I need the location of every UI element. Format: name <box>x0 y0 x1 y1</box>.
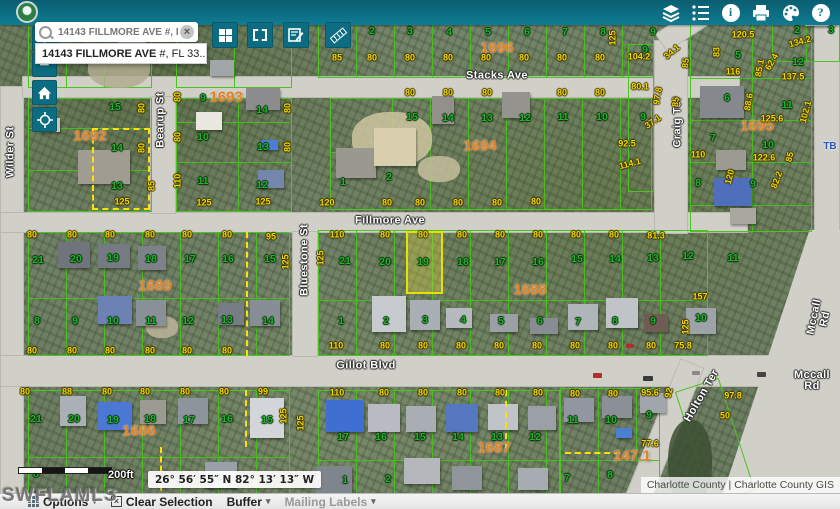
lot-number: 7 <box>575 317 581 328</box>
parcel-line <box>508 230 509 356</box>
lot-number: 5 <box>498 316 504 327</box>
lot-number: 10 <box>762 140 774 151</box>
lot-number: 8 <box>34 316 40 327</box>
parcel-line <box>584 20 585 78</box>
dimension-label: 80 <box>646 342 656 351</box>
block-number: 1693 <box>209 90 242 105</box>
lot-number: 15 <box>406 112 418 123</box>
print-icon <box>751 3 771 23</box>
dimension-label: 80 <box>405 89 415 98</box>
bottom-toolbar: Options ▾ × Clear Selection Buffer ▾ Mai… <box>0 493 840 509</box>
parcel-line <box>28 457 290 458</box>
dimension-label: 80 <box>531 198 541 207</box>
street-label: Wilder St <box>6 126 17 177</box>
marquee-select-icon <box>253 29 267 41</box>
apps-grid-icon <box>219 29 232 42</box>
help-button[interactable]: ? <box>809 1 832 24</box>
home-button[interactable] <box>32 80 57 105</box>
dimension-label: 85 <box>332 54 342 63</box>
search-box[interactable]: × <box>35 22 198 42</box>
help-icon: ? <box>812 4 830 22</box>
dimension-label: 80 <box>519 54 529 63</box>
measure-button[interactable] <box>325 22 351 48</box>
dimension-label: 80 <box>138 103 147 113</box>
parcel-line <box>690 162 812 163</box>
lot-number: 4 <box>446 27 452 38</box>
dimension-label: 80 <box>418 389 428 398</box>
dimension-label: 80 <box>182 347 192 356</box>
parcel-line <box>176 122 292 123</box>
lot-number: 12 <box>256 180 268 191</box>
buffer-menu[interactable]: Buffer ▾ <box>227 495 271 509</box>
house <box>326 400 364 432</box>
dimension-label: 80 <box>457 389 467 398</box>
lot-number: 11 <box>197 176 208 187</box>
dimension-label: 80 <box>145 347 155 356</box>
mailing-labels-menu[interactable]: Mailing Labels ▾ <box>284 495 375 509</box>
car <box>626 344 634 348</box>
lot-number: 17 <box>494 257 506 268</box>
dimension-label: 77.6 <box>641 440 659 449</box>
lot-number: 9 <box>650 27 656 38</box>
house <box>528 406 556 430</box>
lot-number: 20 <box>70 254 82 265</box>
dimension-label: 80 <box>482 89 492 98</box>
dimension-label: 120 <box>319 199 334 208</box>
dimension-label: 92.5 <box>618 140 636 149</box>
lot-number: 19 <box>107 253 119 264</box>
lot-number: 2 <box>369 26 375 37</box>
dimension-label: 80 <box>27 347 37 356</box>
legend-list-icon-svg <box>691 3 711 23</box>
dimension-label: 110 <box>174 174 183 189</box>
lot-number: 14 <box>256 105 268 116</box>
lot-number: 8 <box>612 316 618 327</box>
dimension-label: 80 <box>595 54 605 63</box>
lot-number: 6 <box>724 93 730 104</box>
dimension-label: 110 <box>330 389 345 398</box>
info-button[interactable]: i <box>719 1 742 24</box>
lot-number: 18 <box>144 414 156 425</box>
dimension-label: 125.6 <box>761 115 784 124</box>
dimension-label: 80 <box>443 54 453 63</box>
lot-number: 7 <box>562 27 568 38</box>
layers-icon-svg <box>661 3 681 23</box>
lot-number: 5 <box>735 50 741 61</box>
parcel-line <box>432 20 433 78</box>
block-number: 1689 <box>138 279 171 294</box>
lot-number: 21 <box>339 256 351 267</box>
block-number: 1688 <box>513 283 546 298</box>
lot-number: 14 <box>111 143 123 154</box>
lot-number: 3 <box>422 315 428 326</box>
lot-number: 7 <box>710 133 716 144</box>
dimension-label: 110 <box>330 231 345 240</box>
lot-number: 10 <box>197 132 209 143</box>
lot-number: 17 <box>337 432 349 443</box>
ground-patch <box>418 156 460 182</box>
dimension-label: 110 <box>329 342 344 351</box>
lot-number: 14 <box>262 316 274 327</box>
dimension-label: 80 <box>557 89 567 98</box>
lot-number: 1 <box>342 475 348 486</box>
lot-number: 12 <box>182 316 194 327</box>
dimension-label: 85 <box>671 97 681 108</box>
dimension-label: 125 <box>280 408 289 423</box>
lot-number: 11 <box>727 253 738 264</box>
dashed-parcel-line <box>565 452 620 454</box>
parcel-line <box>180 232 181 356</box>
dimension-label: 80 <box>443 89 453 98</box>
dimension-label: 80 <box>182 231 192 240</box>
parcel-line <box>394 230 395 356</box>
dimension-label: 80 <box>382 199 392 208</box>
house <box>446 308 472 328</box>
dimension-label: 80 <box>595 89 605 98</box>
dimension-label: 80 <box>608 342 618 351</box>
lot-number: 11 <box>781 100 792 111</box>
dimension-label: 85 <box>148 181 157 191</box>
lot-number: 11 <box>145 316 156 327</box>
lot-number: 15 <box>109 102 121 113</box>
lot-number: 16 <box>532 257 544 268</box>
lot-number: 7 <box>564 473 570 484</box>
suggestion-rest: #, FL 33... <box>156 48 207 60</box>
dimension-label: 125 <box>682 319 691 334</box>
lot-number: 10 <box>605 415 617 426</box>
dimension-label: 80 <box>284 142 293 152</box>
lot-number: 13 <box>257 142 269 153</box>
legend-list-icon[interactable] <box>689 1 712 24</box>
lot-number: 13 <box>491 432 503 443</box>
parcel-line <box>394 20 395 78</box>
lot-number: 13 <box>111 181 123 192</box>
parcel-line <box>470 230 471 356</box>
scale-label: 200ft <box>108 469 134 481</box>
house <box>196 112 222 130</box>
house <box>616 428 632 438</box>
lot-number: 9 <box>750 179 756 190</box>
dimension-label: 88 <box>62 388 72 397</box>
parcel-line <box>598 388 599 509</box>
dimension-label: 80 <box>609 231 619 240</box>
house <box>700 86 744 118</box>
dimension-label: 80 <box>219 388 229 397</box>
lot-number: 19 <box>417 257 429 268</box>
dimension-label: 80 <box>492 199 502 208</box>
dimension-label: 80 <box>570 390 580 399</box>
house <box>488 404 518 430</box>
lot-number: 10 <box>107 316 119 327</box>
lot-number: 10 <box>695 313 707 324</box>
dimension-label: 116 <box>726 68 741 77</box>
dimension-label: 80 <box>456 342 466 351</box>
dimension-label: 125 <box>255 198 270 207</box>
dimension-label: 80 <box>453 199 463 208</box>
dimension-label: 80 <box>222 347 232 356</box>
house <box>406 406 436 432</box>
dimension-label: 80 <box>105 347 115 356</box>
parcel-line <box>218 390 219 509</box>
parcel-line <box>546 20 547 78</box>
lot-number: 2 <box>383 316 389 327</box>
car <box>757 372 766 377</box>
parcel-line <box>622 230 623 356</box>
dimension-label: 125 <box>282 254 291 269</box>
house <box>446 404 478 432</box>
lot-number: 4 <box>460 315 466 326</box>
dimension-label: 80 <box>457 231 467 240</box>
dimension-label: 125 <box>297 415 306 430</box>
dimension-label: 80 <box>481 54 491 63</box>
clear-selection-label: Clear Selection <box>126 495 213 509</box>
dimension-label: 125 <box>609 30 618 45</box>
lot-number: 12 <box>792 57 804 68</box>
lot-number: 13 <box>647 253 659 264</box>
suggestion-main: 14143 FILLMORE AVE <box>42 48 156 60</box>
parcel-line <box>218 232 219 356</box>
house <box>374 128 416 166</box>
lot-number: 15 <box>571 254 583 265</box>
lot-number: 12 <box>529 432 541 443</box>
coordinates-readout: 26° 56′ 55″ N 82° 13′ 13″ W <box>148 471 321 488</box>
map-canvas[interactable]: Stacks AveFillmore AveGillot BlvdWilder … <box>0 0 840 509</box>
dimension-label: 125 <box>317 250 326 265</box>
parcel-block <box>176 98 292 212</box>
dimension-label: 80.1 <box>631 83 649 92</box>
dimension-label: 95 <box>266 233 276 242</box>
lot-number: 20 <box>68 414 80 425</box>
dimension-label: 80 <box>380 231 390 240</box>
search-suggestion[interactable]: 14143 FILLMORE AVE #, FL 33... <box>35 43 207 64</box>
dimension-label: 80 <box>174 92 183 102</box>
street-label: Gillot Blvd <box>336 361 395 372</box>
lot-number: 17 <box>183 415 195 426</box>
locate-icon <box>37 112 53 128</box>
clear-search-icon[interactable]: × <box>180 25 194 39</box>
dimension-label: 80 <box>222 231 232 240</box>
house <box>210 60 234 76</box>
lot-number: 16 <box>221 414 233 425</box>
dimension-label: 80 <box>67 347 77 356</box>
dimension-label: 120.5 <box>732 31 755 40</box>
gis-parcel-viewer: Stacks AveFillmore AveGillot BlvdWilder … <box>0 0 840 509</box>
dimension-label: 83 <box>713 47 722 57</box>
lot-number: 13 <box>221 315 233 326</box>
lot-number: 1 <box>340 177 346 188</box>
edit-note-button[interactable] <box>283 22 309 48</box>
dimension-label: 97.8 <box>724 392 742 401</box>
lot-number: 9 <box>200 93 206 104</box>
dimension-label: 157 <box>692 293 707 302</box>
clear-selection-button[interactable]: × Clear Selection <box>111 495 213 509</box>
parcel-line <box>176 162 292 163</box>
parcel-line <box>544 98 545 210</box>
lot-number: 12 <box>682 251 694 262</box>
dimension-label: 80 <box>495 231 505 240</box>
lot-number: 6 <box>537 316 543 327</box>
marquee-select-button[interactable] <box>247 22 273 48</box>
lot-number: 14 <box>452 432 464 443</box>
dimension-label: 80 <box>180 388 190 397</box>
dimension-label: 80 <box>105 231 115 240</box>
dimension-label: 50 <box>720 412 730 421</box>
info-icon: i <box>722 4 740 22</box>
dimension-label: 75.8 <box>674 342 692 351</box>
lot-number: 1 <box>338 316 344 327</box>
street-label: Fillmore Ave <box>355 216 425 227</box>
lot-number: 3 <box>407 26 413 37</box>
dimension-label: 80 <box>138 143 147 153</box>
parcel-line <box>622 20 623 78</box>
dimension-label: 80 <box>570 342 580 351</box>
block-number: 1687 <box>477 441 510 456</box>
lot-number: 15 <box>264 254 276 265</box>
parcel-line <box>660 230 661 356</box>
dimension-label: 122.6 <box>753 154 776 163</box>
dimension-label: 80 <box>405 54 415 63</box>
dimension-label: 81.3 <box>647 232 665 241</box>
dimension-label: 80 <box>67 231 77 240</box>
house <box>336 148 376 178</box>
block-number: 147.1 <box>613 449 651 464</box>
county-logo-icon <box>16 1 38 23</box>
house <box>606 298 638 328</box>
lot-number: 8 <box>607 470 613 481</box>
lot-number: 2 <box>385 474 391 485</box>
lot-number: 13 <box>481 113 493 124</box>
lot-number: 2 <box>794 25 800 36</box>
lot-number: 6 <box>524 27 530 38</box>
street-label: Stacks Ave <box>466 71 528 82</box>
dimension-label: 80 <box>27 231 37 240</box>
dimension-label: 80 <box>532 342 542 351</box>
road-annotation: TB <box>823 142 836 152</box>
scale-bar <box>18 467 112 474</box>
dimension-label: 110 <box>691 151 706 160</box>
dimension-label: 80 <box>571 231 581 240</box>
dimension-label: 80 <box>379 389 389 398</box>
search-icon <box>39 26 52 39</box>
block-number: 1686 <box>122 424 155 439</box>
lot-number: 9 <box>650 316 656 327</box>
lot-number: 8 <box>600 27 606 38</box>
parcel-line <box>238 98 239 212</box>
house <box>716 150 746 170</box>
measure-ruler-icon <box>329 27 347 43</box>
lot-number: 15 <box>414 432 426 443</box>
search-input[interactable] <box>56 26 180 39</box>
mailing-labels-caret-icon: ▾ <box>371 496 376 507</box>
street-label: Bearup St <box>156 92 167 148</box>
lot-number: 17 <box>184 254 196 265</box>
lot-number: 19 <box>107 415 119 426</box>
dimension-label: 80 <box>102 388 112 397</box>
dimension-label: 80 <box>284 103 293 113</box>
lot-number: 18 <box>145 254 157 265</box>
palette-icon <box>781 3 801 23</box>
dimension-label: 104.2 <box>628 53 651 62</box>
lot-number: 18 <box>457 257 469 268</box>
block-number: 1694 <box>463 139 496 154</box>
house <box>404 458 440 484</box>
house <box>730 208 756 224</box>
dimension-label: 80 <box>174 132 183 142</box>
car <box>692 371 700 375</box>
lot-number: 20 <box>379 257 391 268</box>
lot-number: 11 <box>557 112 568 123</box>
map-attribution: Charlotte County | Charlotte County GIS <box>641 477 840 493</box>
dimension-label: 125 <box>196 199 211 208</box>
house <box>530 318 558 334</box>
parcel-line <box>430 98 431 210</box>
dimension-label: 80 <box>494 342 504 351</box>
lot-number: 5 <box>485 27 491 38</box>
lot-number: 9 <box>72 316 78 327</box>
dimension-label: 80 <box>495 389 505 398</box>
lot-number: 8 <box>695 178 701 189</box>
dimension-label: 80 <box>140 388 150 397</box>
dimension-label: 80 <box>415 199 425 208</box>
lot-number: 16 <box>375 432 387 443</box>
lot-number: 9 <box>646 410 652 421</box>
lot-number: 2 <box>386 172 392 183</box>
dimension-label: 80 <box>557 54 567 63</box>
mailing-labels-label: Mailing Labels <box>284 495 367 509</box>
layers-icon[interactable] <box>659 1 682 24</box>
buffer-caret-icon: ▾ <box>266 496 271 507</box>
palette-button[interactable] <box>779 1 802 24</box>
locate-button[interactable] <box>32 107 57 132</box>
dimension-label: 137.5 <box>782 73 805 82</box>
lot-number: 14 <box>609 254 621 265</box>
print-button[interactable] <box>749 1 772 24</box>
dimension-label: 80 <box>145 231 155 240</box>
lot-number: 3 <box>828 25 834 36</box>
dimension-label: 125 <box>114 198 129 207</box>
parcel-line <box>582 98 583 210</box>
lot-number: 11 <box>567 415 578 426</box>
edit-note-icon <box>288 27 304 43</box>
dimension-label: 95.6 <box>641 389 659 398</box>
parcel-line <box>28 298 290 299</box>
mls-watermark: SWFLAMLS <box>2 485 118 507</box>
lot-number: 15 <box>261 415 273 426</box>
lot-number: 21 <box>32 255 44 266</box>
parcel-line <box>584 230 585 356</box>
dashed-parcel-line <box>245 390 247 447</box>
buffer-label: Buffer <box>227 495 262 509</box>
dimension-label: 80 <box>367 54 377 63</box>
parcel-line <box>356 20 357 78</box>
dimension-label: 80 <box>418 342 428 351</box>
parcel-line <box>356 230 357 356</box>
lot-number: 21 <box>30 414 42 425</box>
dimension-label: 80 <box>533 231 543 240</box>
dimension-label: 80 <box>20 388 30 397</box>
lot-number: 12 <box>519 113 531 124</box>
parcel-line <box>256 232 257 356</box>
house <box>518 468 548 490</box>
house <box>368 404 400 432</box>
block-number: 1692 <box>73 129 106 144</box>
lot-number: 10 <box>596 112 608 123</box>
car <box>643 376 653 381</box>
house <box>568 304 598 330</box>
dimension-label: 80 <box>533 389 543 398</box>
dimension-label: 99 <box>258 388 268 397</box>
basemap-grid-button[interactable] <box>212 22 238 48</box>
